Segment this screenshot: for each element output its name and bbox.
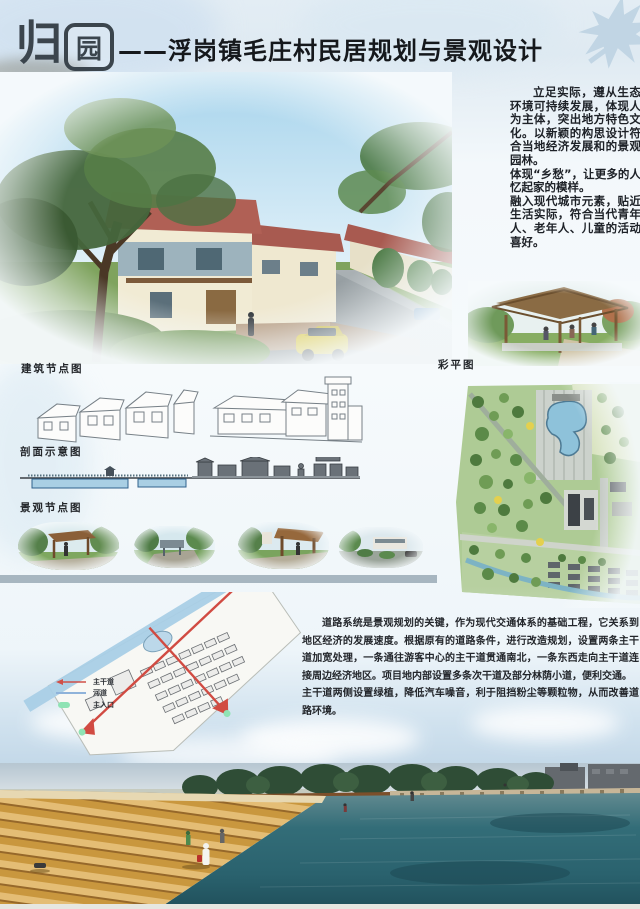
maple-leaf-icon: [559, 0, 640, 81]
design-poster: 归 园 ——浮岗镇毛庄村民居规划与景观设计: [0, 0, 640, 909]
waterfront-steps-render: [0, 763, 640, 909]
pavilion-render: [468, 281, 640, 366]
landscape-node-render-3: [238, 522, 329, 569]
logo-char-yuan: 园: [64, 23, 114, 71]
river-line-icon: [56, 689, 86, 697]
main-road-arrow-icon: [56, 678, 86, 686]
road-system-text-block: 道路系统是景观规划的关键，作为现代交通体系的基础工程，它关系到地区经济的发展速度…: [302, 615, 639, 721]
landscape-node-render-4: [339, 527, 423, 568]
section-diagram-drawing: [20, 457, 360, 503]
intro-paragraph: 立足实际，遵从生态环境可持续发展，体现人为主体，突出地方特色文化。以新颖的构思设…: [510, 86, 640, 168]
logo-char-gui: 归: [16, 20, 62, 66]
logo-char-yuan-glyph: 园: [76, 29, 102, 66]
road-plan-legend: 主干道 河道 主入口: [56, 676, 114, 711]
legend-item-river: 河道: [56, 688, 114, 700]
intro-paragraph: 融入现代城市元素，贴近生活实际，符合当代青年人、老年人、儿童的活动喜好。: [510, 195, 640, 249]
page-title: ——浮岗镇毛庄村民居规划与景观设计: [118, 31, 543, 66]
village-street-render: [0, 72, 452, 364]
legend-item-main-entrance: 主入口: [56, 699, 114, 711]
road-paragraph: 道路系统是景观规划的关键，作为现代交通体系的基础工程，它关系到地区经济的发展速度…: [302, 615, 639, 685]
legend-label: 主入口: [93, 700, 114, 710]
section-divider-bar: [0, 575, 437, 583]
intro-text-block: 立足实际，遵从生态环境可持续发展，体现人为主体，突出地方特色文化。以新颖的构思设…: [510, 86, 640, 249]
legend-label: 河道: [93, 688, 107, 698]
main-entrance-marker-icon: [56, 701, 86, 709]
legend-item-main-road: 主干道: [56, 676, 114, 688]
landscape-node-render-1: [18, 522, 119, 570]
color-master-plan: [452, 382, 640, 608]
road-paragraph: 主干道两侧设置绿植，降低汽车噪音，利于阻挡粉尘等颗粒物，从而改善道路环境。: [302, 685, 639, 720]
landscape-node-render-2: [134, 526, 215, 568]
intro-paragraph: 体现“乡愁”，让更多的人忆起家的模样。: [510, 168, 640, 195]
label-landscape-nodes: 景观节点图: [20, 500, 83, 515]
legend-label: 主干道: [93, 677, 114, 687]
label-color-plan: 彩平图: [438, 357, 476, 372]
building-node-sketches: [28, 372, 363, 448]
